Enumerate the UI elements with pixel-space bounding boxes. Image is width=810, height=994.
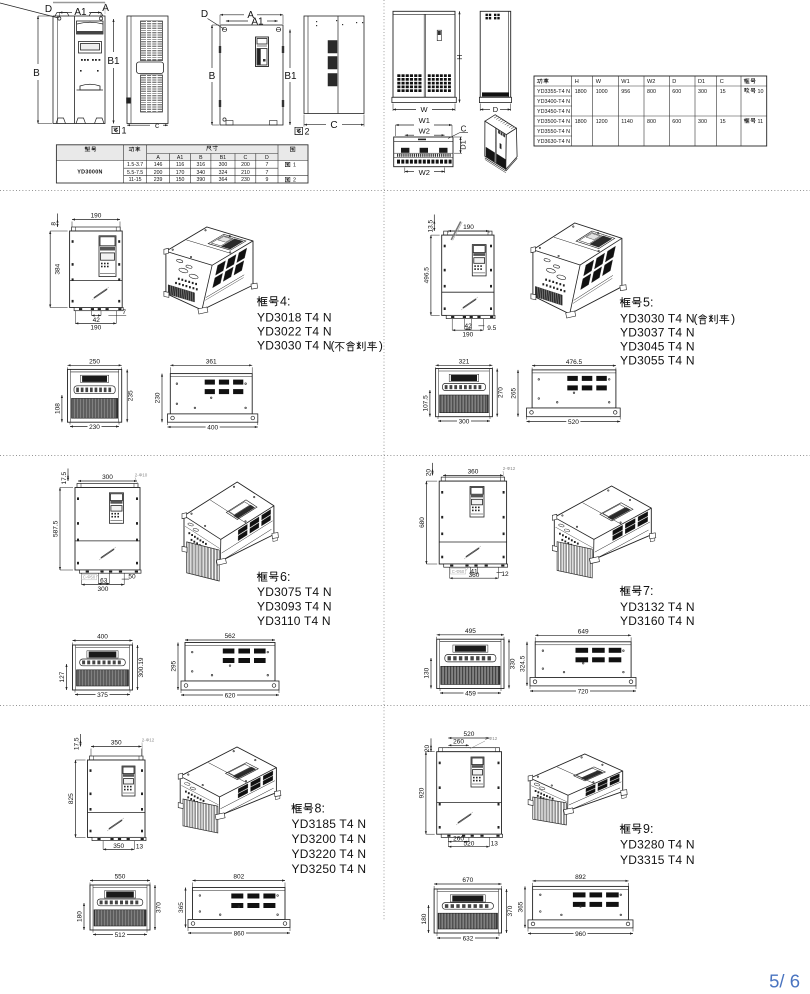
svg-text:YD3093 T4 N: YD3093 T4 N (257, 599, 332, 613)
svg-text:825: 825 (68, 793, 75, 804)
svg-text:YD3075 T4 N: YD3075 T4 N (257, 585, 332, 599)
svg-text:YD3030 T4 N: YD3030 T4 N (257, 339, 332, 353)
svg-text:265: 265 (511, 387, 518, 398)
svg-text:15: 15 (720, 119, 726, 125)
svg-text:600: 600 (672, 119, 681, 125)
svg-text:300: 300 (219, 162, 228, 168)
svg-text:6:: 6: (280, 570, 290, 584)
svg-text:D1: D1 (459, 140, 468, 150)
svg-text:B1: B1 (107, 56, 120, 67)
svg-text:1200: 1200 (596, 119, 608, 125)
svg-text:600: 600 (672, 89, 681, 95)
svg-text:15: 15 (720, 89, 726, 95)
svg-text:1: 1 (293, 163, 296, 169)
svg-text:W1: W1 (621, 79, 629, 85)
svg-text:(: ( (694, 312, 698, 326)
svg-text:190: 190 (462, 332, 473, 339)
svg-text:190: 190 (90, 325, 101, 332)
svg-text:A: A (102, 3, 109, 14)
svg-text:9.5: 9.5 (487, 325, 496, 332)
svg-text:(: ( (331, 339, 335, 353)
svg-text:670: 670 (462, 877, 473, 884)
svg-text:632: 632 (463, 935, 474, 942)
svg-text:300: 300 (97, 586, 108, 593)
svg-text:1.5-3.7: 1.5-3.7 (127, 162, 143, 168)
svg-text:H: H (575, 79, 579, 85)
svg-text:324: 324 (219, 170, 228, 176)
svg-text:YD3280 T4 N: YD3280 T4 N (620, 838, 695, 852)
svg-text:956: 956 (621, 89, 630, 95)
svg-text:YD3018 T4 N: YD3018 T4 N (257, 311, 332, 325)
svg-text:107.5: 107.5 (422, 395, 429, 412)
svg-text:200: 200 (154, 170, 163, 176)
svg-text:400: 400 (207, 424, 218, 431)
svg-text:170: 170 (176, 170, 185, 176)
svg-text:A1: A1 (177, 155, 183, 161)
svg-text:235: 235 (128, 390, 135, 401)
svg-text:D: D (672, 79, 676, 85)
svg-text:459: 459 (465, 690, 476, 697)
svg-text:360: 360 (468, 469, 479, 476)
svg-text:520: 520 (463, 840, 474, 847)
svg-text:C-Φ50: C-Φ50 (452, 569, 465, 574)
svg-text:20: 20 (426, 469, 433, 477)
svg-text:YD3500-T4 N: YD3500-T4 N (537, 119, 570, 125)
svg-text:720: 720 (578, 688, 589, 695)
svg-text:8: 8 (51, 222, 58, 226)
svg-text:520: 520 (568, 419, 579, 426)
svg-text:384: 384 (55, 263, 62, 274)
svg-text:230: 230 (89, 424, 100, 431)
svg-text:A1: A1 (251, 16, 264, 27)
svg-text:250: 250 (89, 359, 100, 366)
svg-text:270: 270 (498, 387, 505, 398)
svg-text:10: 10 (758, 89, 764, 95)
svg-text:YD3400-T4 N: YD3400-T4 N (537, 99, 570, 105)
svg-text:370: 370 (156, 902, 163, 913)
svg-text:375: 375 (97, 692, 108, 699)
svg-text:649: 649 (578, 629, 589, 636)
svg-text:680: 680 (419, 517, 426, 528)
svg-text:YD3450-T4 N: YD3450-T4 N (537, 109, 570, 115)
svg-text:190: 190 (91, 213, 102, 220)
svg-text:12: 12 (501, 571, 509, 578)
svg-text:520: 520 (463, 731, 474, 738)
svg-text:340: 340 (196, 170, 205, 176)
svg-text:17.5: 17.5 (74, 737, 81, 750)
svg-text:A: A (156, 155, 160, 161)
svg-text:324.5: 324.5 (520, 655, 527, 672)
svg-text:50: 50 (128, 574, 136, 581)
svg-text:150: 150 (176, 177, 185, 183)
svg-text:476.5: 476.5 (566, 359, 583, 366)
svg-text:63: 63 (100, 577, 108, 584)
svg-text:300.19: 300.19 (138, 657, 145, 677)
svg-text:C: C (244, 155, 248, 161)
svg-text:400: 400 (97, 634, 108, 641)
svg-text:YD3355-T4 N: YD3355-T4 N (537, 89, 570, 95)
svg-text:B: B (199, 155, 203, 161)
svg-text:YD3315 T4 N: YD3315 T4 N (620, 853, 695, 867)
svg-text:W: W (420, 105, 428, 114)
svg-text:190: 190 (463, 224, 474, 231)
svg-text:YD3055 T4 N: YD3055 T4 N (620, 354, 695, 368)
svg-text:5.5-7.5: 5.5-7.5 (127, 170, 143, 176)
svg-text:5/ 6: 5/ 6 (769, 971, 800, 990)
svg-text:1800: 1800 (575, 89, 587, 95)
svg-text:239: 239 (154, 177, 163, 183)
svg-text:300: 300 (102, 474, 113, 481)
svg-text:B: B (209, 71, 216, 82)
svg-text:364: 364 (219, 177, 228, 183)
svg-text:YD3045 T4 N: YD3045 T4 N (620, 340, 695, 354)
svg-text:550: 550 (115, 874, 126, 881)
svg-text:W: W (596, 79, 602, 85)
svg-text:361: 361 (206, 359, 217, 366)
svg-text:A1: A1 (74, 7, 87, 18)
svg-text:B: B (33, 68, 40, 79)
svg-text:YD3132 T4 N: YD3132 T4 N (620, 600, 695, 614)
svg-text:321: 321 (459, 359, 470, 366)
svg-text:9:: 9: (643, 822, 653, 836)
svg-text:2-Φ12: 2-Φ12 (142, 738, 155, 743)
svg-text:YD3250 T4 N: YD3250 T4 N (292, 862, 367, 876)
svg-text:370: 370 (507, 905, 514, 916)
svg-text:): ) (731, 312, 735, 326)
svg-text:W1: W1 (419, 116, 430, 125)
svg-text:180: 180 (421, 913, 428, 924)
svg-text:W2: W2 (419, 126, 430, 135)
svg-text:210: 210 (241, 170, 250, 176)
svg-text:1000: 1000 (596, 89, 608, 95)
svg-text:YD3037 T4 N: YD3037 T4 N (620, 326, 695, 340)
svg-text:350: 350 (113, 843, 124, 850)
svg-text:300: 300 (698, 119, 707, 125)
svg-text:960: 960 (575, 931, 586, 938)
svg-text:1140: 1140 (621, 119, 633, 125)
svg-text:B1: B1 (284, 71, 297, 82)
svg-text:13: 13 (491, 840, 499, 847)
svg-text:200: 200 (241, 162, 250, 168)
svg-text:365: 365 (178, 902, 185, 913)
svg-text:2: 2 (293, 178, 296, 184)
svg-text:390: 390 (196, 177, 205, 183)
svg-text:562: 562 (225, 633, 236, 640)
svg-text:YD3000N: YD3000N (77, 170, 102, 176)
svg-text:C: C (330, 120, 337, 131)
svg-text:2-Φ12: 2-Φ12 (503, 466, 516, 471)
svg-text:C-Φ50: C-Φ50 (83, 575, 96, 580)
svg-text:H: H (455, 54, 464, 59)
svg-text:800: 800 (647, 119, 656, 125)
svg-text:330: 330 (510, 658, 517, 669)
svg-text:YD3022 T4 N: YD3022 T4 N (257, 325, 332, 339)
svg-text:130: 130 (424, 667, 431, 678)
svg-text:42: 42 (93, 317, 101, 324)
svg-text:9: 9 (265, 177, 268, 183)
svg-text:42: 42 (464, 323, 472, 330)
svg-text:230: 230 (241, 177, 250, 183)
svg-text:17.5: 17.5 (61, 471, 68, 484)
svg-text:YD3200 T4 N: YD3200 T4 N (292, 832, 367, 846)
svg-text:W2: W2 (419, 168, 430, 177)
svg-text:350: 350 (111, 740, 122, 747)
svg-text:2: 2 (304, 127, 309, 137)
svg-text:D: D (493, 105, 499, 114)
svg-text:180: 180 (77, 911, 84, 922)
svg-text:365: 365 (518, 901, 525, 912)
svg-text:1: 1 (121, 126, 126, 136)
svg-text:146: 146 (154, 162, 163, 168)
svg-text:360: 360 (469, 572, 480, 579)
svg-text:D: D (201, 9, 208, 20)
svg-text:YD3030 T4 N: YD3030 T4 N (620, 312, 695, 326)
svg-text:C: C (461, 125, 467, 134)
svg-text:C: C (720, 79, 724, 85)
svg-text:512: 512 (115, 932, 126, 939)
svg-text:495: 495 (465, 628, 476, 635)
svg-text:YD3550-T4 N: YD3550-T4 N (537, 129, 570, 135)
svg-text:YD3160 T4 N: YD3160 T4 N (620, 614, 695, 628)
svg-text:D1: D1 (698, 79, 705, 85)
svg-text:1800: 1800 (575, 119, 587, 125)
svg-text:496.5: 496.5 (423, 267, 430, 284)
svg-text:892: 892 (575, 874, 586, 881)
svg-text:260: 260 (453, 739, 464, 746)
svg-text:7: 7 (265, 162, 268, 168)
svg-text:300: 300 (698, 89, 707, 95)
svg-text:11-15: 11-15 (129, 177, 142, 183)
svg-text:7:: 7: (643, 584, 653, 598)
svg-text:8:: 8: (315, 802, 325, 816)
svg-text:20: 20 (424, 745, 431, 753)
svg-text:316: 316 (196, 162, 205, 168)
svg-text:7: 7 (265, 170, 268, 176)
svg-text:295: 295 (171, 660, 178, 671)
svg-text:7: 7 (122, 309, 126, 316)
svg-text:D: D (265, 155, 269, 161)
svg-text:11: 11 (758, 119, 764, 125)
svg-text:13: 13 (136, 844, 144, 851)
svg-text:116: 116 (176, 162, 184, 168)
svg-text:920: 920 (418, 787, 425, 798)
svg-text:800: 800 (647, 89, 656, 95)
svg-text:230: 230 (155, 392, 162, 403)
svg-text:YD3110 T4 N: YD3110 T4 N (257, 614, 331, 628)
svg-text:YD3220 T4 N: YD3220 T4 N (292, 847, 367, 861)
svg-text:860: 860 (234, 930, 245, 937)
svg-text:5:: 5: (643, 296, 653, 310)
svg-text:13.5: 13.5 (427, 219, 434, 232)
svg-text:W2: W2 (647, 79, 655, 85)
svg-text:300: 300 (459, 418, 470, 425)
svg-text:802: 802 (233, 874, 244, 881)
svg-text:c: c (155, 121, 159, 130)
svg-text:YD3630-T4 N: YD3630-T4 N (537, 139, 570, 145)
svg-text:YD3185 T4 N: YD3185 T4 N (292, 817, 367, 831)
svg-text:127: 127 (59, 671, 66, 682)
svg-text:4:: 4: (280, 295, 290, 309)
svg-text:): ) (379, 339, 383, 353)
svg-text:108: 108 (54, 403, 61, 414)
svg-text:587.5: 587.5 (53, 520, 60, 537)
svg-text:B1: B1 (220, 155, 226, 161)
svg-text:2-Φ10: 2-Φ10 (135, 473, 148, 478)
svg-text:2-Φ12: 2-Φ12 (485, 736, 498, 741)
svg-text:620: 620 (225, 692, 236, 699)
svg-text:D: D (45, 4, 52, 15)
